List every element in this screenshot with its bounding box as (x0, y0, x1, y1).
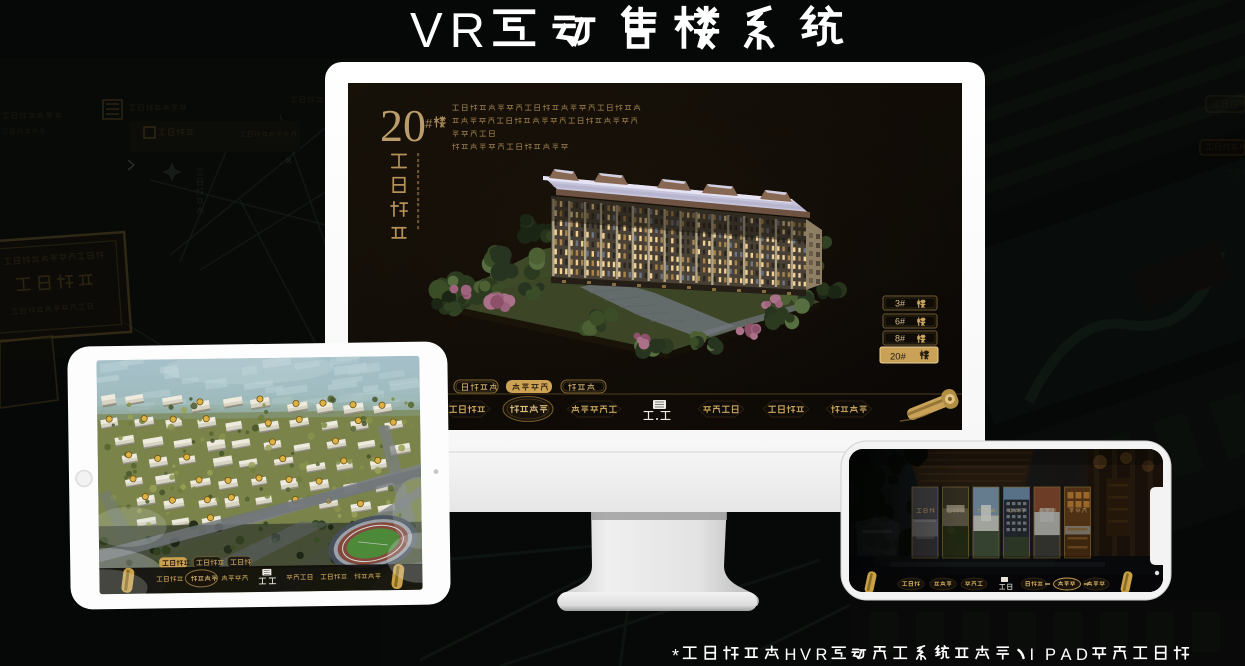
svg-text:6#: 6# (895, 317, 905, 327)
svg-text:D: D (1076, 646, 1088, 664)
svg-text:#: # (425, 116, 433, 131)
svg-text:I: I (1030, 646, 1035, 664)
svg-text:P: P (1045, 646, 1056, 664)
svg-text:20: 20 (380, 100, 426, 151)
svg-text:20#: 20# (890, 352, 907, 363)
svg-text:H: H (785, 646, 797, 664)
svg-text:3#: 3# (895, 299, 905, 309)
svg-text:8#: 8# (895, 334, 905, 344)
svg-text:A: A (1061, 646, 1072, 664)
svg-text:V: V (800, 646, 811, 664)
svg-text:*: * (672, 646, 679, 666)
svg-text:R: R (816, 646, 828, 664)
svg-text:VR: VR (410, 4, 492, 58)
